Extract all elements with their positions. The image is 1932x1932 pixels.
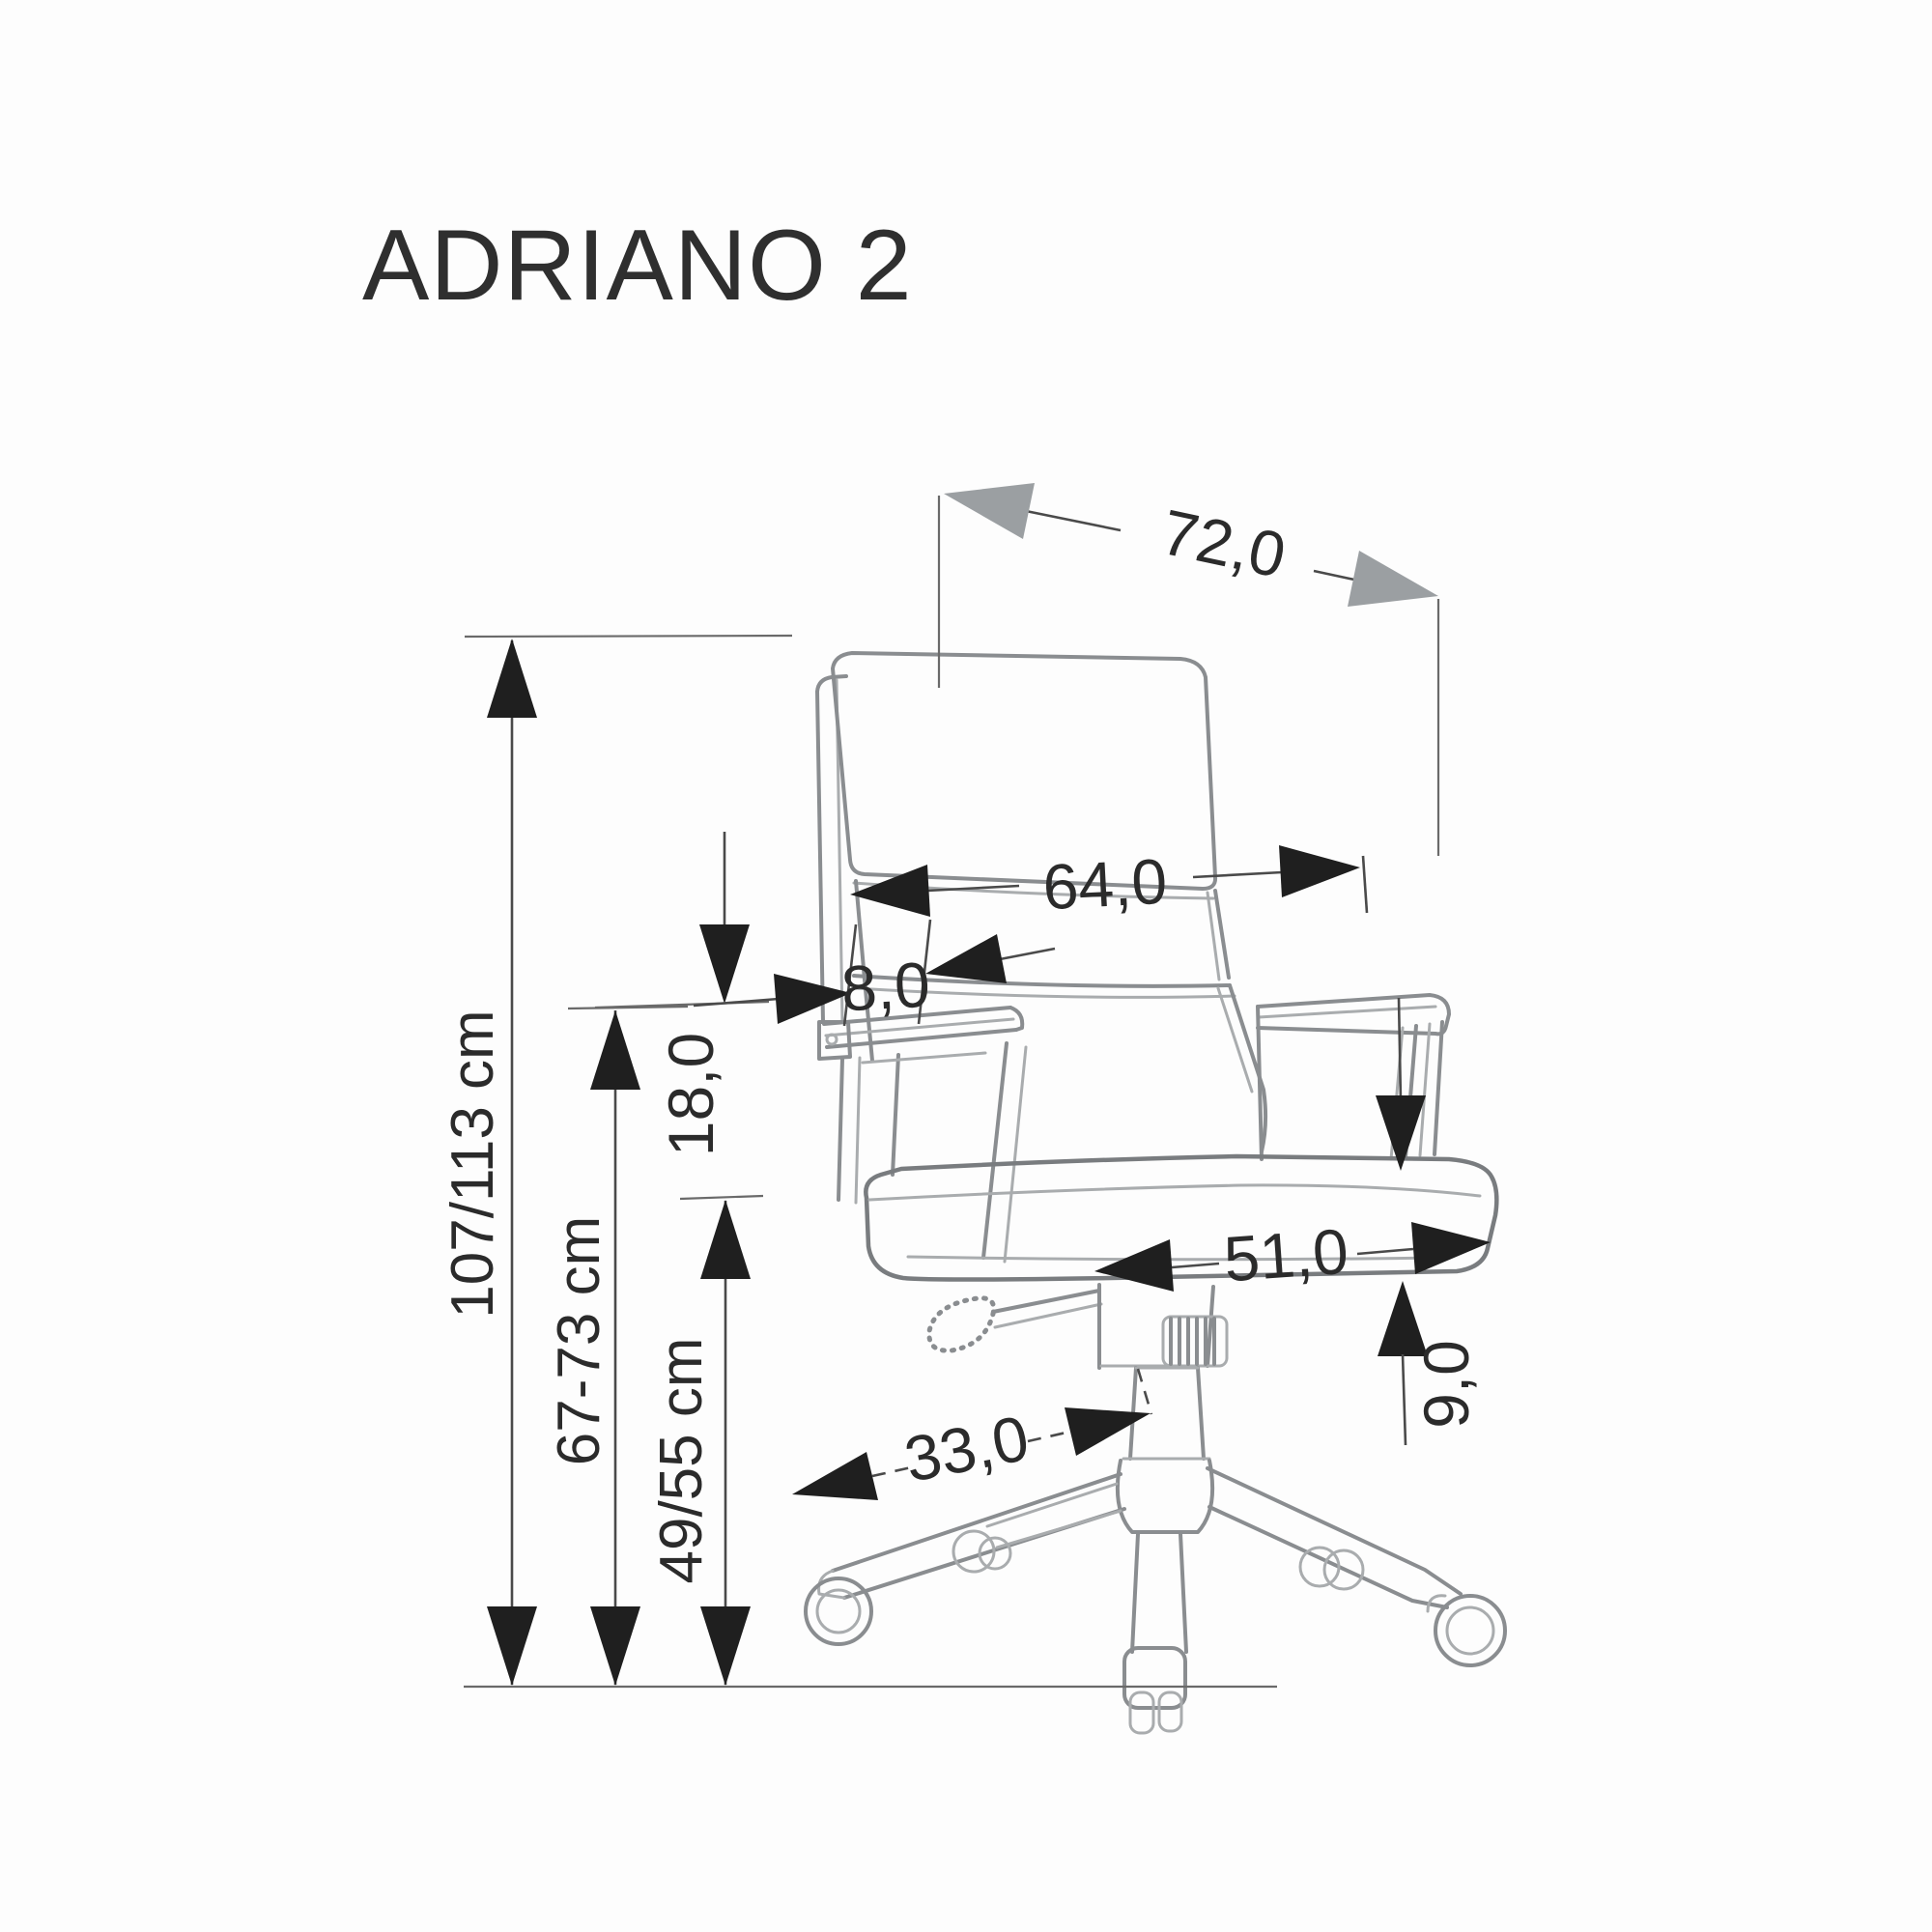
depth-label: 72,0	[1155, 496, 1292, 591]
dimension-diagram-page: 107/113 cm 67-73 cm 49/55 cm 18,0 72,0	[0, 0, 1932, 1932]
total-height-label: 107/113 cm	[440, 1009, 506, 1318]
backrest-width-label: 64,0	[1041, 845, 1169, 923]
dimension-seat-depth: 51,0	[1094, 1215, 1491, 1295]
left-armrest	[819, 1008, 1026, 1262]
seat-mechanism	[1099, 1285, 1227, 1368]
right-armrest	[1258, 995, 1449, 1159]
seat	[866, 1156, 1496, 1280]
armrest-height-label: 67-73 cm	[546, 1216, 612, 1465]
dimension-backrest-width: 64,0	[850, 845, 1367, 923]
armrest-gap-label: 18,0	[655, 1033, 726, 1156]
chair-drawing	[806, 653, 1505, 1733]
dimension-armrest-gap: 18,0	[595, 832, 769, 1156]
caster-front	[1124, 1648, 1185, 1733]
backrest-thickness-label: 8,0	[839, 949, 931, 1025]
page-title: ADRIANO 2	[362, 210, 913, 322]
caster-left	[806, 1578, 871, 1644]
dimension-seat-thickness: 9,0	[1376, 998, 1482, 1445]
seat-height-label: 49/55 cm	[648, 1337, 715, 1583]
seat-depth-label: 51,0	[1222, 1215, 1350, 1295]
dimension-depth: 72,0	[939, 483, 1438, 856]
base-arm-label: 33,0	[898, 1402, 1034, 1495]
dimension-seat-height: 49/55 cm	[648, 1196, 763, 1686]
caster-back-small	[953, 1531, 1363, 1589]
diagram-canvas: 107/113 cm 67-73 cm 49/55 cm 18,0 72,0	[0, 0, 1932, 1932]
seat-thickness-label: 9,0	[1410, 1340, 1482, 1429]
tilt-lever	[929, 1291, 1101, 1350]
